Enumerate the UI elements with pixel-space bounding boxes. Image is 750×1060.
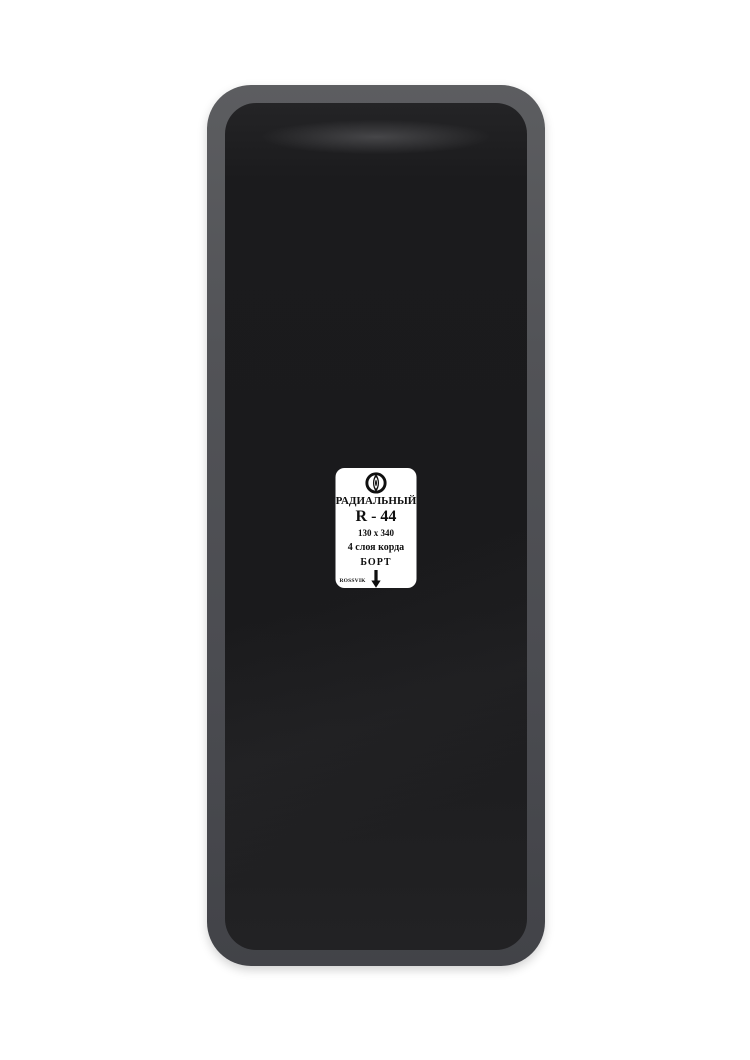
patch-rubber-surface: РАДИАЛЬНЫЙ R - 44 130 x 340 4 слоя корда… [225, 103, 527, 950]
label-model: R - 44 [356, 509, 397, 525]
label-bead-text: БОРТ [360, 558, 391, 568]
product-label: РАДИАЛЬНЫЙ R - 44 130 x 340 4 слоя корда… [336, 468, 417, 588]
label-brand-text: ROSSVIK [340, 579, 366, 585]
rossvik-leaf-logo-icon [365, 472, 388, 494]
tyre-repair-patch: РАДИАЛЬНЫЙ R - 44 130 x 340 4 слоя корда… [207, 85, 545, 966]
bead-direction-down-arrow-icon [371, 570, 382, 588]
product-photo: РАДИАЛЬНЫЙ R - 44 130 x 340 4 слоя корда… [0, 0, 750, 1060]
label-type-text: РАДИАЛЬНЫЙ [336, 496, 417, 507]
label-cord-layers: 4 слоя корда [348, 543, 404, 553]
label-size: 130 x 340 [358, 529, 394, 538]
